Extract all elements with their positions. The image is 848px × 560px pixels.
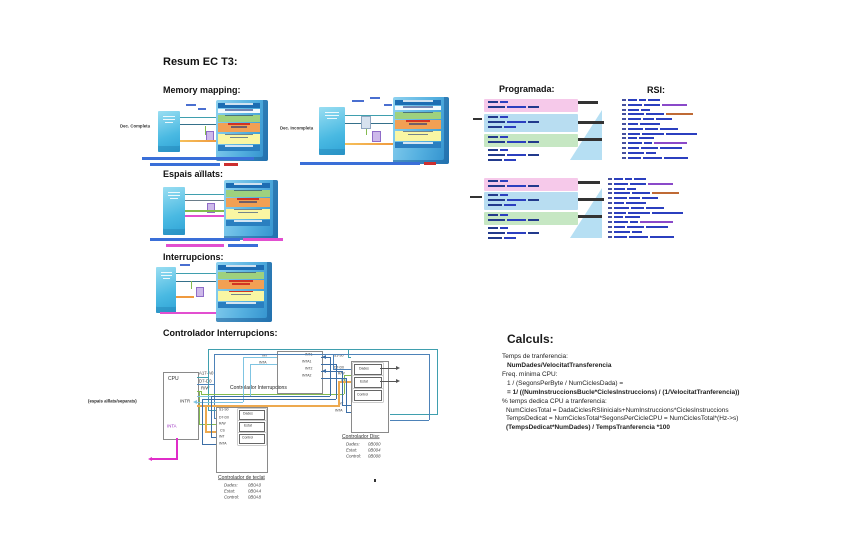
wire [214, 354, 215, 418]
arrowhead [396, 366, 400, 370]
annotation-bar [578, 181, 600, 184]
code-text-run [648, 183, 673, 185]
code-text-run [622, 99, 626, 101]
code-text-run [622, 118, 626, 120]
code-text-run [629, 197, 640, 199]
kbd-pin-rw: R/W [219, 422, 226, 425]
code-text-run [500, 116, 508, 118]
code-text-run [608, 192, 612, 194]
wire [208, 349, 437, 350]
cpu-thumbnail [163, 187, 185, 235]
code-text-run [652, 192, 679, 194]
code-text-run [639, 99, 646, 101]
code-text-run [625, 178, 632, 180]
kbd-register-estat [239, 422, 265, 432]
text-bar [384, 104, 392, 106]
code-text-run [652, 212, 683, 214]
wire [180, 117, 216, 118]
code-line [622, 157, 720, 159]
code-line [488, 101, 574, 103]
wire [321, 357, 330, 358]
text-bar [198, 108, 206, 110]
assembly-listing-rsi [622, 99, 720, 161]
caption-bar [166, 244, 224, 247]
annotation-bar [578, 121, 604, 124]
code-text-run [631, 207, 644, 209]
intc-pin-inta2: INTA2 [302, 374, 311, 377]
wire [176, 296, 194, 298]
code-band-pink [484, 99, 578, 112]
code-text-run [504, 126, 516, 128]
disc-pin-inta: INTA [335, 409, 343, 412]
cpu-pin-intr: INTR [180, 399, 190, 403]
wire [345, 143, 393, 145]
code-text-run [630, 221, 638, 223]
code-text-run [660, 128, 678, 130]
code-line [488, 199, 574, 201]
code-text-run [507, 106, 526, 108]
assembly-listing-2 [608, 178, 706, 240]
code-text-run [650, 236, 674, 238]
disc-caption: Controlador Disc [342, 434, 380, 439]
code-text-run [628, 142, 642, 144]
code-text-run [641, 147, 658, 149]
code-line [622, 128, 720, 130]
code-text-run [628, 157, 641, 159]
code-text-run [528, 154, 539, 156]
code-text-run [488, 159, 502, 161]
code-line [488, 141, 574, 143]
code-band-green [484, 212, 578, 225]
code-text-run [488, 126, 502, 128]
code-text-run [488, 154, 505, 156]
code-line [608, 202, 706, 204]
code-line [622, 133, 720, 135]
wire [214, 354, 429, 355]
annotation-bar [578, 198, 604, 201]
memory-map-panel [216, 262, 272, 322]
code-line [608, 197, 706, 199]
code-text-run [622, 152, 626, 154]
code-text-run [625, 216, 640, 218]
code-tail [488, 227, 566, 241]
code-text-run [656, 118, 672, 120]
code-line [622, 152, 720, 154]
code-text-run [628, 118, 641, 120]
annotation-bar [578, 138, 602, 141]
code-text-run [627, 188, 636, 190]
disc-map-dades-name: Dades: [346, 442, 360, 446]
kbd-pin-d7d0: D7-D0 [219, 416, 229, 419]
code-text-run [614, 236, 627, 238]
calc-line: NumDades/VelocitatTransferencia [507, 361, 611, 368]
wire [205, 405, 340, 407]
wire [201, 394, 344, 395]
code-text-run [642, 197, 658, 199]
code-text-run [646, 152, 656, 154]
code-text-run [622, 142, 626, 144]
code-line [608, 192, 706, 194]
heading-calculs: Calculs: [507, 332, 554, 346]
wire [152, 458, 178, 460]
code-text-run [528, 232, 539, 234]
wire [180, 124, 216, 125]
wire [185, 215, 224, 217]
heading-memory-mapping: Memory mapping: [163, 85, 241, 95]
code-text-run [622, 157, 626, 159]
heading-controlador-interrupcions: Controlador Interrupcions: [163, 328, 278, 338]
code-line [622, 109, 720, 111]
wire [202, 399, 203, 444]
code-text-run [662, 104, 687, 106]
wire [380, 381, 396, 382]
disc-map-control-addr: 0B008 [368, 454, 380, 458]
code-text-run [500, 227, 508, 229]
code-text-run [614, 188, 625, 190]
wire [243, 357, 277, 358]
code-text-run [628, 137, 637, 139]
code-text-run [488, 214, 498, 216]
code-text-run [632, 231, 642, 233]
code-text-run [628, 212, 650, 214]
code-text-run [639, 137, 654, 139]
code-text-run [507, 185, 526, 187]
code-text-run [507, 121, 526, 123]
code-text-run [488, 204, 502, 206]
code-band-blue [484, 192, 578, 210]
code-text-run [622, 123, 626, 125]
caption-bar [224, 163, 238, 166]
code-line [488, 204, 574, 206]
wire [202, 399, 336, 400]
caption-bar [300, 162, 420, 165]
code-text-run [488, 227, 498, 229]
wire [321, 371, 342, 372]
code-line [622, 142, 720, 144]
code-text-run [614, 192, 630, 194]
code-line [622, 123, 720, 125]
code-line [488, 116, 574, 118]
code-text-run [640, 221, 673, 223]
code-text-run [488, 149, 498, 151]
cpu-thumbnail [319, 107, 345, 155]
wire [330, 357, 331, 396]
code-text-run [507, 232, 526, 234]
heading-interrupcions: Interrupcions: [163, 252, 224, 262]
code-band-green [484, 134, 578, 147]
kbd-register-estat-label: Estat [244, 424, 252, 427]
cpu-pin-inta: INTA [167, 424, 177, 428]
note-espais-aillats: (espais aïllats/separats) [88, 399, 137, 403]
code-tail [488, 149, 566, 163]
code-text-run [644, 104, 660, 106]
code-text-run [528, 121, 539, 123]
code-line [608, 221, 706, 223]
text-bar [180, 264, 190, 266]
code-text-run [500, 136, 508, 138]
code-text-run [628, 123, 638, 125]
code-line [488, 227, 566, 229]
code-text-run [614, 202, 624, 204]
code-text-run [488, 121, 505, 123]
code-text-run [608, 178, 612, 180]
stray-mark [374, 479, 376, 482]
kbd-map-control-addr: 0B0A8 [248, 495, 261, 499]
code-label-bar [473, 118, 482, 120]
code-text-run [614, 231, 630, 233]
wire [336, 364, 337, 399]
wire [380, 368, 396, 369]
code-line [488, 149, 566, 151]
code-line [608, 226, 706, 228]
code-text-run [528, 141, 539, 143]
caption-bar [228, 244, 258, 247]
code-text-run [488, 237, 502, 239]
decoder-box [207, 203, 215, 213]
caption-bar [142, 157, 254, 160]
code-line [622, 99, 720, 101]
code-text-run [528, 219, 539, 221]
code-text-run [644, 142, 652, 144]
code-line [608, 231, 706, 233]
intc-pin-int2: INT2 [305, 367, 312, 370]
code-text-run [608, 226, 612, 228]
memory-map-panel [216, 100, 268, 161]
code-line [488, 237, 566, 239]
decoder-box [372, 131, 381, 142]
wire [176, 273, 216, 274]
wire [346, 378, 347, 412]
cpu-box-title: CPU [168, 376, 179, 381]
code-text-run [507, 199, 526, 201]
code-line [488, 106, 574, 108]
code-line [622, 137, 720, 139]
page-title: Resum EC T3: [163, 56, 238, 68]
code-text-run [632, 192, 650, 194]
wire [197, 384, 214, 385]
code-text-run [507, 219, 526, 221]
code-text-run [628, 147, 639, 149]
code-text-run [628, 113, 644, 115]
code-line [608, 183, 706, 185]
wire [197, 377, 208, 378]
code-text-run [488, 101, 498, 103]
code-text-run [660, 147, 682, 149]
code-text-run [608, 183, 612, 185]
wire [211, 396, 212, 437]
code-text-run [646, 113, 664, 115]
code-text-run [488, 116, 498, 118]
kbd-pin-int: INT [219, 435, 225, 438]
code-text-run [500, 101, 508, 103]
code-text-run [528, 199, 539, 201]
code-line [622, 113, 720, 115]
disc-register-estat-label: Estat [360, 380, 368, 383]
code-line [488, 194, 574, 196]
wire [176, 281, 216, 282]
disc-map-dades-addr: 0B000 [368, 442, 380, 446]
calc-line: Freq. mínima CPU: [502, 370, 557, 377]
code-band-pink [484, 178, 578, 191]
calc-line: Temps de tranferencia: [502, 352, 568, 359]
code-text-run [504, 159, 516, 161]
intc-label: Controlador Interrupcions [230, 385, 287, 390]
code-text-run [507, 154, 526, 156]
wire [338, 381, 351, 383]
wire [344, 375, 351, 376]
code-line [488, 136, 574, 138]
code-text-run [507, 141, 526, 143]
code-text-run [608, 231, 612, 233]
code-band-blue [484, 114, 578, 132]
wire [437, 349, 438, 415]
code-text-run [628, 109, 639, 111]
code-text-run [608, 202, 612, 204]
code-text-run [504, 237, 516, 239]
kbd-register-control-label: Control [242, 436, 253, 439]
disc-register-estat [354, 377, 382, 388]
caption-bar [150, 238, 240, 241]
wire [197, 405, 205, 407]
code-line [488, 185, 574, 187]
code-text-run [500, 194, 508, 196]
heading-rsi: RSI: [647, 85, 665, 95]
code-text-run [628, 133, 640, 135]
code-text-run [614, 207, 629, 209]
code-text-run [645, 128, 658, 130]
calc-line: = 1/ ((NumInstruccionsBucle*CiclesInstru… [507, 388, 739, 395]
caption-bar [243, 238, 283, 241]
code-text-run [622, 109, 626, 111]
decoder-box [196, 287, 204, 297]
disc-map-estat-name: Estat: [346, 448, 357, 452]
code-text-run [634, 178, 646, 180]
wire [176, 438, 178, 460]
code-line [488, 232, 566, 234]
code-text-run [608, 216, 612, 218]
heading-espais-aillats: Espais aïllats: [163, 169, 223, 179]
code-text-run [614, 226, 625, 228]
code-text-run [488, 106, 505, 108]
code-text-run [488, 219, 505, 221]
wire [321, 378, 346, 379]
code-text-run [622, 113, 626, 115]
code-text-run [642, 133, 664, 135]
code-text-run [643, 118, 654, 120]
code-text-run [614, 212, 626, 214]
code-text-run [626, 202, 646, 204]
cpu-pin-address-bus: A17-A0 [199, 371, 213, 375]
code-text-run [614, 221, 628, 223]
code-line [622, 147, 720, 149]
code-text-run [488, 199, 505, 201]
code-text-run [488, 141, 505, 143]
code-text-run [608, 236, 612, 238]
wire [214, 418, 216, 419]
wire [338, 381, 340, 405]
cpu-box [163, 372, 199, 440]
wire [250, 364, 251, 396]
wire [202, 444, 216, 445]
calc-line: 1 / (SegonsPerByte / NumCiclesDada) = [507, 379, 623, 386]
code-text-run [608, 188, 612, 190]
wire [390, 420, 429, 421]
kbd-register-dades-label: Dades [243, 412, 253, 415]
code-text-run [528, 185, 539, 187]
code-text-run [528, 106, 539, 108]
code-text-run [614, 197, 627, 199]
code-line [488, 214, 574, 216]
code-label-bar [470, 196, 482, 198]
code-text-run [628, 152, 644, 154]
code-text-run [641, 109, 650, 111]
code-text-run [500, 180, 508, 182]
wire [250, 364, 277, 365]
code-line [488, 159, 566, 161]
memory-map-panel [224, 180, 278, 240]
heading-programada: Programada: [499, 84, 555, 94]
wire [348, 357, 351, 358]
code-text-run [654, 142, 687, 144]
kbd-pin-cs: CS [220, 429, 225, 432]
code-text-run [608, 197, 612, 199]
wire [333, 354, 334, 369]
arrowhead [148, 457, 152, 461]
code-line [608, 207, 706, 209]
annotation-bar [578, 215, 602, 218]
code-text-run [488, 136, 498, 138]
code-line [608, 236, 706, 238]
cpu-thumbnail [158, 111, 180, 152]
calc-line: NumCiclesTotal = DadaCiclesRSIinicials+N… [506, 406, 729, 413]
text-bar [370, 97, 380, 99]
code-text-run [646, 226, 668, 228]
code-line [608, 212, 706, 214]
calc-line: (TempsDedicat*NumDades) / TempsTranferen… [506, 423, 670, 430]
wire [185, 194, 224, 195]
code-text-run [630, 183, 646, 185]
arrowhead [396, 379, 400, 383]
wire [205, 405, 207, 431]
caption-bar [424, 162, 436, 165]
kbd-pin-s1s0: S1-S0 [219, 408, 229, 411]
code-text-run [488, 194, 498, 196]
code-text-run [628, 99, 637, 101]
code-text-run [488, 180, 498, 182]
kbd-map-dades-addr: 0B0A0 [248, 483, 261, 487]
code-line [488, 154, 566, 156]
code-line [488, 180, 574, 182]
code-text-run [622, 147, 626, 149]
disc-map-estat-addr: 0B004 [368, 448, 380, 452]
cpu-thumbnail [156, 267, 176, 313]
code-line [622, 104, 720, 106]
code-text-run [628, 104, 642, 106]
code-text-run [628, 128, 643, 130]
calc-line: TempsDedicat = NumCiclesTotal*SegonsPerC… [506, 414, 738, 421]
code-line [488, 126, 574, 128]
code-text-run [608, 207, 612, 209]
kbd-map-estat-name: Estat: [224, 489, 235, 493]
code-text-run [622, 137, 626, 139]
code-text-run [488, 232, 505, 234]
code-line [488, 121, 574, 123]
code-text-run [664, 157, 688, 159]
wire [180, 140, 216, 142]
code-text-run [608, 221, 612, 223]
intc-pin-inta1: INTA1 [302, 360, 311, 363]
wire [185, 200, 224, 201]
